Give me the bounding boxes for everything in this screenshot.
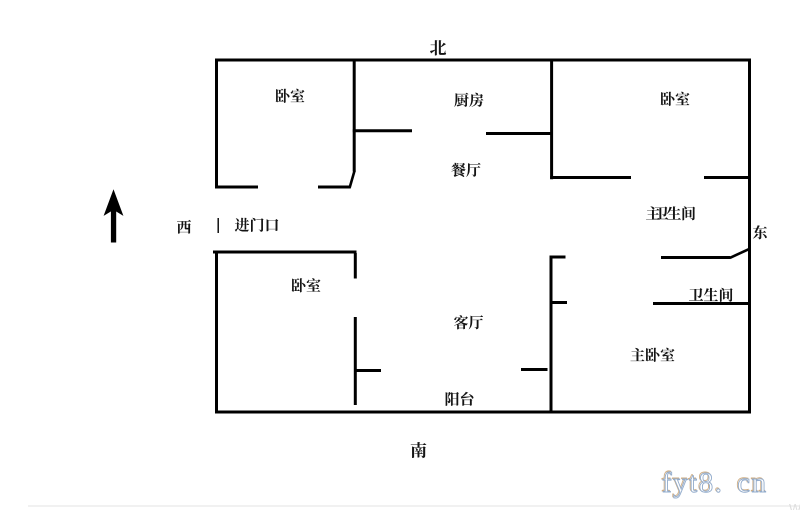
svg-text:fyt8. cn: fyt8. cn <box>662 467 768 499</box>
svg-text:W: W <box>789 501 800 510</box>
